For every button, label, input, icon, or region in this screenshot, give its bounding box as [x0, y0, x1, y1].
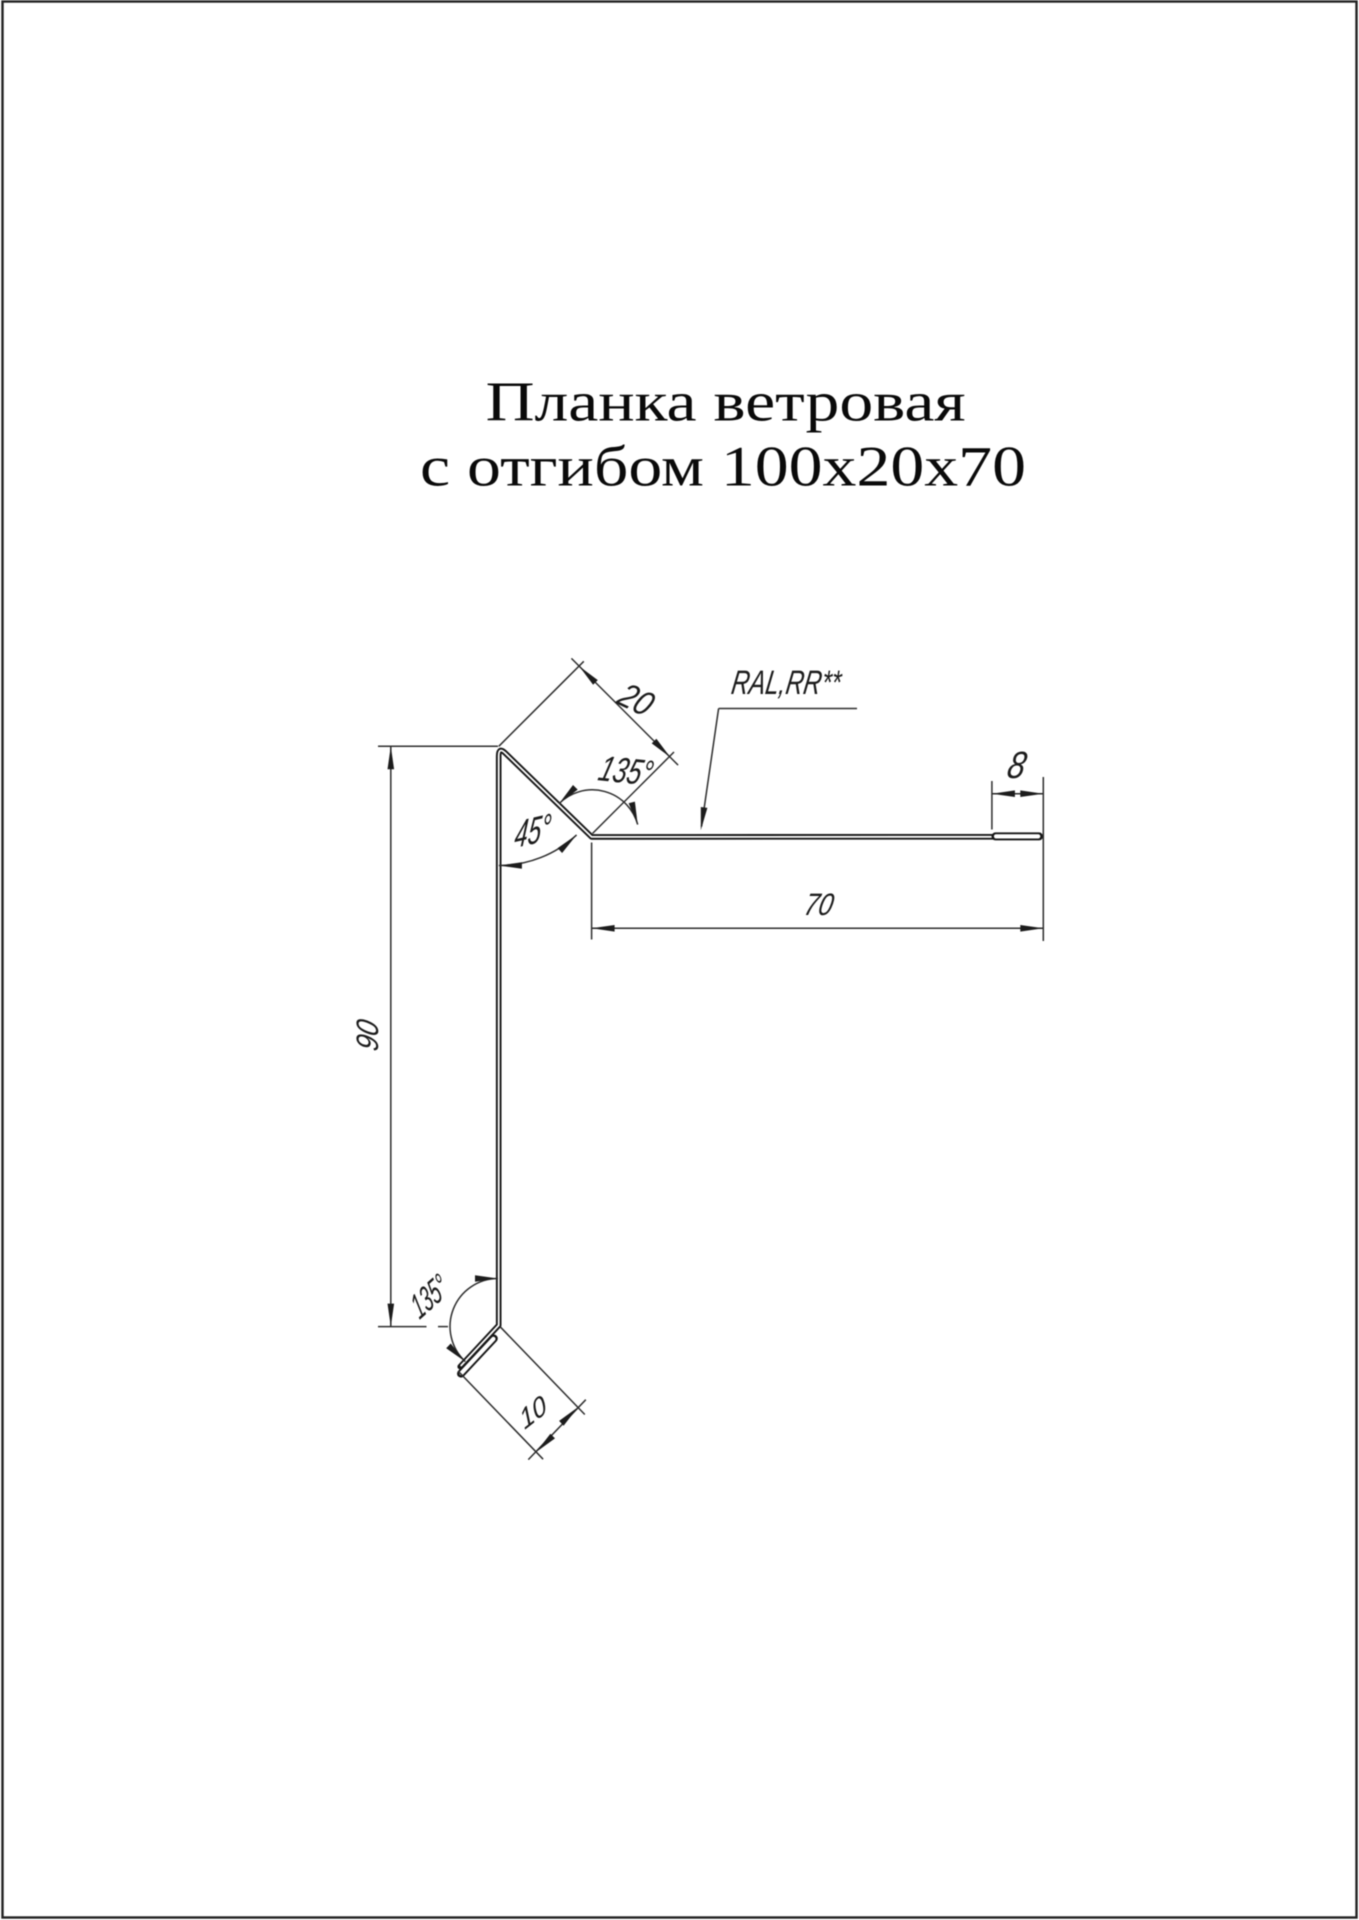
- svg-text:RAL,RR**: RAL,RR**: [729, 664, 845, 702]
- svg-text:90: 90: [351, 1016, 386, 1054]
- svg-text:с отгибом 100х20х70: с отгибом 100х20х70: [420, 436, 1026, 499]
- svg-text:8: 8: [1004, 744, 1031, 786]
- svg-text:70: 70: [801, 888, 837, 922]
- svg-text:Планка ветровая: Планка ветровая: [486, 372, 966, 434]
